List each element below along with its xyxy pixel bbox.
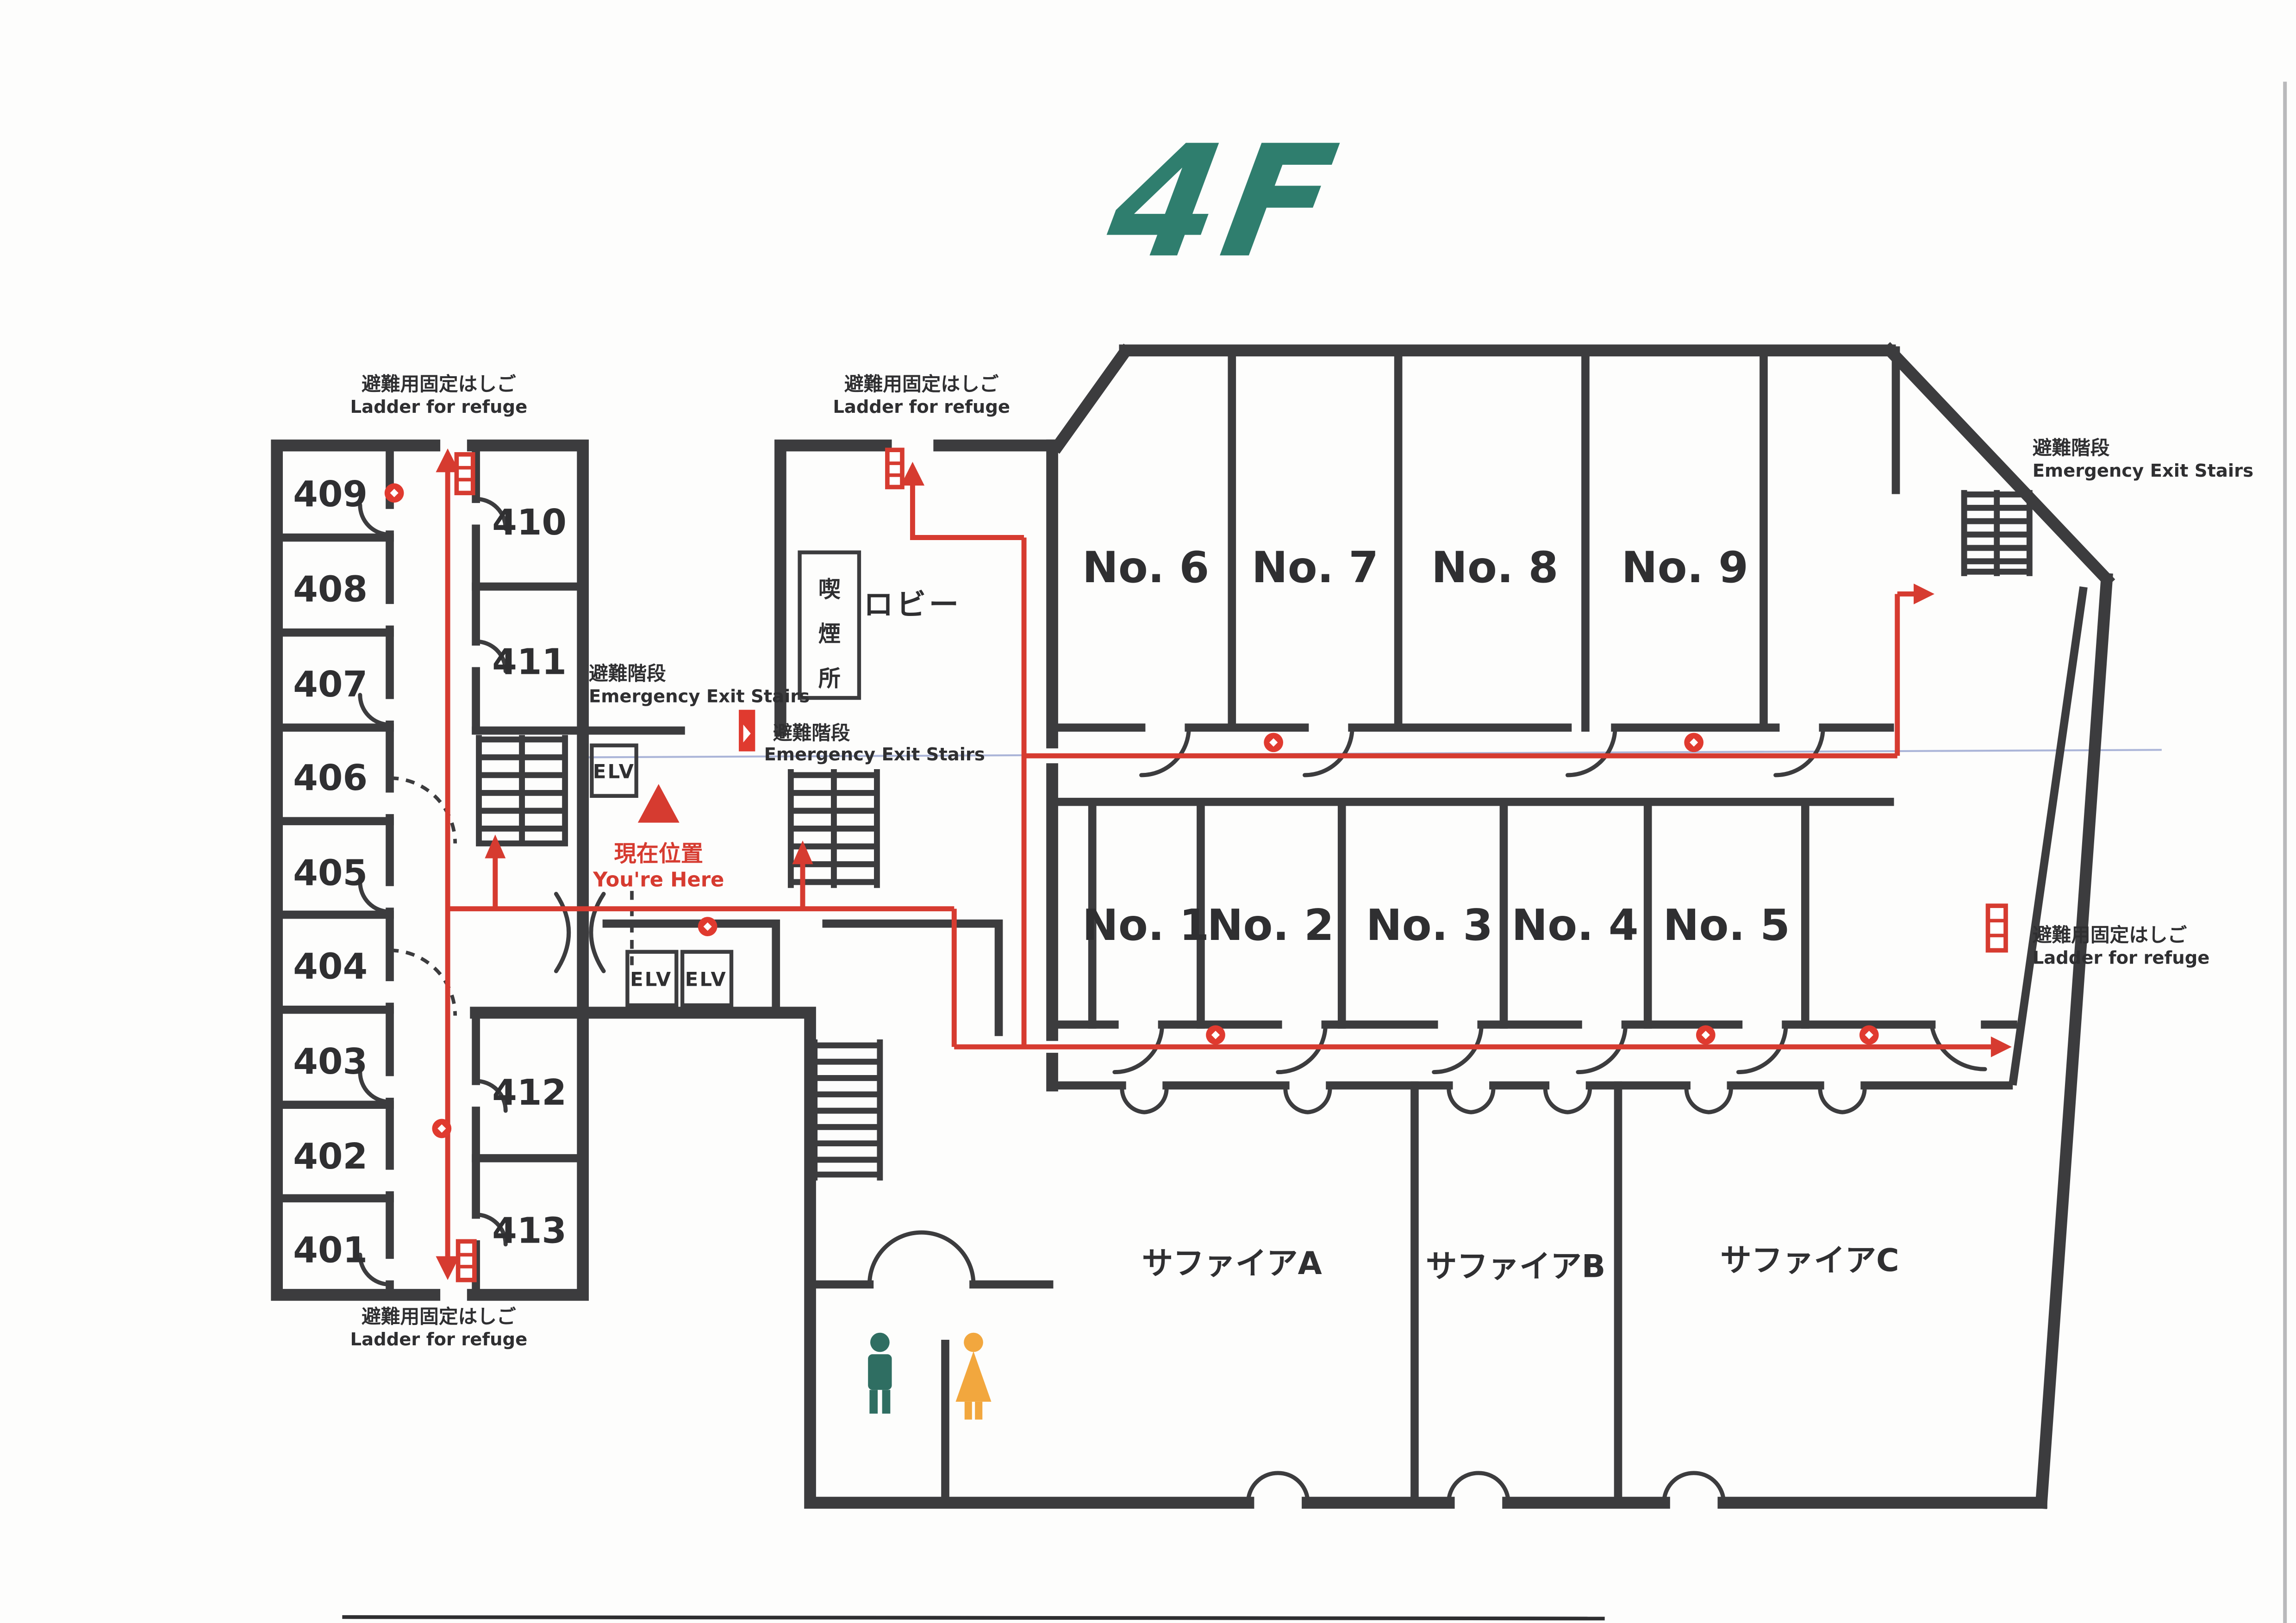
svg-text:Emergency Exit Stairs: Emergency Exit Stairs: [589, 686, 810, 707]
svg-text:No. 4: No. 4: [1511, 900, 1638, 950]
svg-text:喫: 喫: [818, 577, 841, 603]
svg-text:408: 408: [293, 569, 368, 610]
svg-text:所: 所: [818, 665, 841, 691]
svg-text:避難用固定はしご: 避難用固定はしご: [2033, 923, 2187, 946]
svg-text:402: 402: [293, 1136, 368, 1177]
svg-text:No. 1: No. 1: [1082, 900, 1209, 950]
svg-text:Emergency Exit Stairs: Emergency Exit Stairs: [764, 744, 985, 765]
svg-text:サファイアB: サファイアB: [1426, 1248, 1605, 1284]
svg-text:411: 411: [492, 642, 567, 683]
svg-text:サファイアA: サファイアA: [1142, 1245, 1322, 1281]
hall-labels-middle: No. 1 No. 2 No. 3 No. 4 No. 5: [1082, 900, 1790, 950]
svg-text:No. 7: No. 7: [1252, 542, 1379, 592]
svg-text:You're Here: You're Here: [593, 869, 724, 892]
fire-extinguisher-icon: [1206, 1026, 1225, 1045]
fire-extinguisher-icon: [385, 483, 404, 503]
stairs-icon-top-right: [1964, 490, 2029, 576]
svg-text:406: 406: [293, 758, 368, 799]
elevator-label-2: ELV: [630, 968, 672, 991]
banquet-labels: サファイアA サファイアB サファイアC: [1142, 1242, 1899, 1285]
you-are-here-label: 現在位置 You're Here: [593, 841, 724, 892]
fire-extinguisher-icon: [1264, 733, 1283, 752]
svg-text:No. 3: No. 3: [1366, 900, 1493, 950]
svg-text:避難用固定はしご: 避難用固定はしご: [362, 373, 516, 395]
svg-text:403: 403: [293, 1041, 368, 1082]
stairs-icons: [479, 490, 2030, 1181]
ladder-icon-top-left: [456, 454, 473, 493]
ladder-icon-right: [1988, 906, 2006, 950]
ladder-label-top-left: 避難用固定はしご Ladder for refuge: [350, 373, 528, 417]
svg-text:Ladder for refuge: Ladder for refuge: [833, 397, 1010, 417]
svg-text:避難用固定はしご: 避難用固定はしご: [844, 373, 999, 395]
smoking-room-label: 喫 煙 所: [818, 577, 841, 692]
svg-text:405: 405: [293, 852, 368, 894]
svg-text:避難階段: 避難階段: [2033, 436, 2110, 459]
svg-text:避難階段: 避難階段: [773, 721, 850, 744]
guest-room-labels-left: 409 408 407 406 405 404 403 402 401: [293, 474, 368, 1271]
svg-text:No. 5: No. 5: [1663, 900, 1790, 950]
svg-text:407: 407: [293, 664, 368, 705]
svg-text:サファイアC: サファイアC: [1720, 1242, 1899, 1279]
floor-plan: 4F 避難用固定はしご Ladder for refuge 避難用固定はしご L…: [0, 0, 2296, 1623]
svg-text:Emergency Exit Stairs: Emergency Exit Stairs: [2033, 460, 2253, 481]
page-title: 4F: [1094, 112, 1353, 292]
elevator-label-1: ELV: [593, 760, 635, 783]
elevator-label-3: ELV: [685, 968, 727, 991]
svg-text:412: 412: [492, 1072, 567, 1113]
svg-text:避難用固定はしご: 避難用固定はしご: [362, 1305, 516, 1328]
fire-extinguisher-icon: [1684, 733, 1703, 752]
fire-extinguisher-icon: [1696, 1026, 1716, 1045]
svg-text:No. 9: No. 9: [1622, 542, 1748, 592]
fire-extinguisher-icon: [1859, 1026, 1879, 1045]
toilet-entry-arc: [869, 1232, 973, 1284]
svg-text:Ladder for refuge: Ladder for refuge: [2033, 947, 2210, 968]
stairs-icon-lower: [815, 1039, 880, 1181]
exit-stairs-label-top-right: 避難階段 Emergency Exit Stairs: [2033, 436, 2253, 481]
ladder-label-bottom-left: 避難用固定はしご Ladder for refuge: [350, 1305, 528, 1350]
ladder-icon-top-middle: [887, 450, 902, 487]
svg-text:Ladder for refuge: Ladder for refuge: [350, 397, 528, 417]
fire-extinguisher-icon: [432, 1119, 451, 1138]
hall-labels-upper: No. 6 No. 7 No. 8 No. 9: [1082, 542, 1748, 592]
route-arrow-right-ladder: [1991, 1037, 2012, 1057]
svg-text:404: 404: [293, 946, 368, 987]
door-swings: [360, 499, 1985, 1500]
svg-text:避難階段: 避難階段: [589, 662, 666, 685]
svg-text:Ladder for refuge: Ladder for refuge: [350, 1329, 528, 1350]
svg-text:No. 8: No. 8: [1431, 542, 1558, 592]
ladder-icon-bottom-left: [458, 1241, 474, 1280]
female-toilet-icon: [955, 1333, 991, 1420]
svg-text:No. 6: No. 6: [1082, 542, 1209, 592]
exit-stairs-label-middle: 避難階段 Emergency Exit Stairs: [764, 721, 985, 765]
guest-room-labels-right: 410 411 412 413: [492, 502, 567, 1252]
route-arrow-top-right-stairs: [1914, 584, 1934, 604]
svg-text:410: 410: [492, 502, 567, 543]
stairs-icon-left: [479, 735, 565, 846]
svg-text:413: 413: [492, 1211, 567, 1252]
fire-extinguisher-icon: [698, 917, 717, 936]
svg-text:No. 2: No. 2: [1207, 900, 1334, 950]
svg-text:409: 409: [293, 474, 368, 515]
svg-text:現在位置: 現在位置: [614, 841, 703, 867]
you-are-here-marker: [638, 784, 680, 822]
ladder-label-top-middle: 避難用固定はしご Ladder for refuge: [833, 373, 1010, 417]
exit-door-icon: [739, 710, 755, 752]
svg-text:401: 401: [293, 1230, 368, 1271]
male-toilet-icon: [868, 1333, 892, 1414]
svg-text:煙: 煙: [818, 621, 841, 647]
lobby-label: ロビー: [864, 587, 962, 622]
ladder-label-right: 避難用固定はしご Ladder for refuge: [2033, 923, 2210, 968]
